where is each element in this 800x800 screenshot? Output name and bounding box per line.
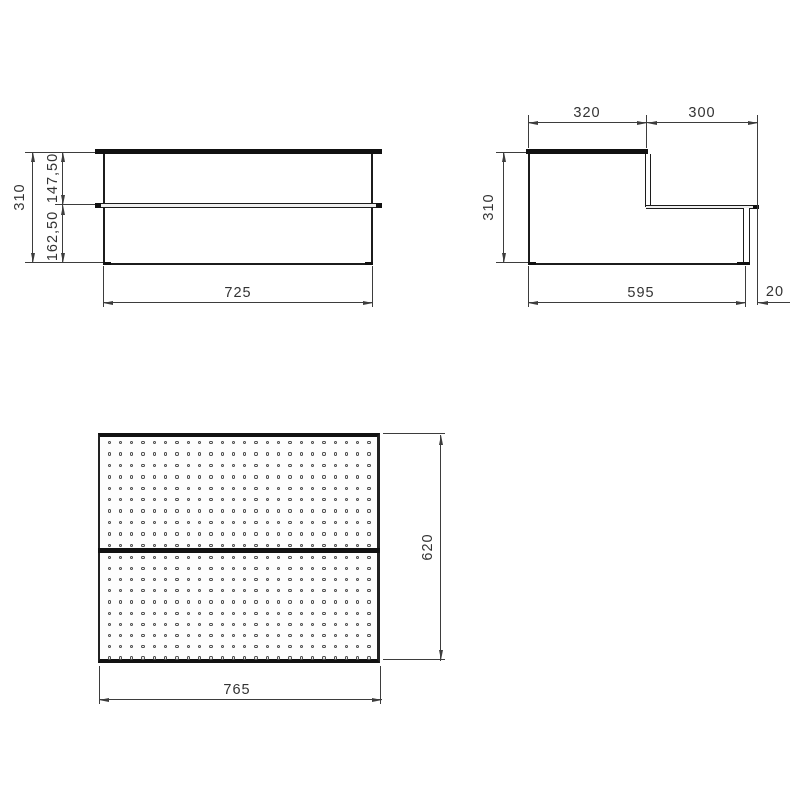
perforation-dot xyxy=(288,475,291,478)
arrowhead xyxy=(439,650,443,660)
perforation-dot xyxy=(345,475,348,478)
perforation-dot xyxy=(334,556,337,559)
perforation-dot xyxy=(141,556,144,559)
perforation-dot xyxy=(311,532,314,535)
perforation-dot xyxy=(187,612,190,615)
perforation-dot xyxy=(141,578,144,581)
arrowhead xyxy=(61,253,65,263)
perforation-dot xyxy=(367,634,370,637)
perforation-dot xyxy=(300,487,303,490)
perforation-dot xyxy=(141,612,144,615)
perforation-dot xyxy=(221,532,224,535)
arrowhead xyxy=(748,121,758,125)
perforation-dot xyxy=(266,487,269,490)
perforation-dot xyxy=(119,556,122,559)
dim-side-upper-depth: 320 xyxy=(573,105,600,121)
perforation-dot xyxy=(322,567,325,570)
perforation-dot xyxy=(300,452,303,455)
front-mid-tread-cap-right xyxy=(376,203,382,208)
side-foot-right xyxy=(737,262,750,266)
front-mid-tread-cap-left xyxy=(95,203,101,208)
front-top-tread-edge xyxy=(95,149,382,154)
perforation-dot xyxy=(187,656,190,659)
perforation-dot xyxy=(141,509,144,512)
perforation-dot xyxy=(300,509,303,512)
perforation-dot xyxy=(288,521,291,524)
perforation-dot xyxy=(209,556,212,559)
perforation-dot xyxy=(221,623,224,626)
perforation-dot xyxy=(288,464,291,467)
perforation-dot xyxy=(209,600,212,603)
perforation-dot xyxy=(119,452,122,455)
perforation-dot xyxy=(300,600,303,603)
perforation-dot xyxy=(141,487,144,490)
dim-side-lip-overhang: 20 xyxy=(766,284,784,300)
perforation-dot xyxy=(300,475,303,478)
perforation-dot xyxy=(277,475,280,478)
perforation-dot xyxy=(221,509,224,512)
perforation-dot xyxy=(108,600,111,603)
perforation-dot xyxy=(254,578,257,581)
perforation-dot xyxy=(141,544,144,547)
perforation-dot xyxy=(254,544,257,547)
perforation-dot xyxy=(187,475,190,478)
perforation-dot xyxy=(198,656,201,659)
perforation-dot xyxy=(153,532,156,535)
perforation-dot xyxy=(334,544,337,547)
perforation-dot xyxy=(209,634,212,637)
perforation-dot xyxy=(209,612,212,615)
dimension-line xyxy=(440,435,441,661)
perforation-dot xyxy=(141,600,144,603)
technical-drawing-canvas: 310 147,50 162,50 725 xyxy=(0,0,800,800)
perforation-dot xyxy=(266,656,269,659)
plan-step-divider xyxy=(98,548,380,553)
perforation-dot xyxy=(221,612,224,615)
perforation-dot xyxy=(153,656,156,659)
perforation-dot xyxy=(254,475,257,478)
front-mid-tread-edge xyxy=(95,203,382,208)
perforation-dot xyxy=(209,509,212,512)
perforation-dot xyxy=(322,556,325,559)
arrowhead xyxy=(31,152,35,162)
side-lower-tread-cap xyxy=(753,205,759,210)
arrowhead xyxy=(528,121,538,125)
perforation-dot xyxy=(322,498,325,501)
perforation-dot xyxy=(254,623,257,626)
perforation-dot xyxy=(175,567,178,570)
perforation-dot xyxy=(187,487,190,490)
front-foot-right xyxy=(365,262,373,266)
dim-front-width: 725 xyxy=(224,285,251,301)
perforation-dot xyxy=(108,521,111,524)
perforation-dot xyxy=(108,556,111,559)
perforation-dot xyxy=(209,623,212,626)
perforation-dot xyxy=(232,452,235,455)
perforation-dot xyxy=(175,600,178,603)
perforation-dot xyxy=(288,578,291,581)
perforation-dot xyxy=(288,487,291,490)
perforation-dot xyxy=(119,475,122,478)
perforation-dot xyxy=(266,544,269,547)
perforation-dot xyxy=(345,600,348,603)
perforation-dot xyxy=(288,623,291,626)
perforation-dot xyxy=(311,600,314,603)
perforation-dot xyxy=(175,509,178,512)
front-foot-left xyxy=(103,262,111,266)
perforation-dot xyxy=(108,509,111,512)
perforation-dot xyxy=(288,452,291,455)
dim-front-total-height: 310 xyxy=(12,183,28,210)
perforation-dot xyxy=(254,509,257,512)
perforation-dot xyxy=(266,509,269,512)
perforation-dot xyxy=(322,487,325,490)
perforation-dot xyxy=(187,556,190,559)
perforation-dot xyxy=(187,600,190,603)
perforation-dot xyxy=(221,567,224,570)
perforation-dot xyxy=(232,475,235,478)
perforation-dot xyxy=(108,612,111,615)
arrowhead xyxy=(758,301,768,305)
perforation-dot xyxy=(254,600,257,603)
perforation-dot xyxy=(141,475,144,478)
dim-front-upper-height: 147,50 xyxy=(45,153,61,203)
side-bottom-edge xyxy=(528,263,746,265)
perforation-dot xyxy=(334,475,337,478)
perforation-dot xyxy=(288,544,291,547)
perforation-dot xyxy=(334,623,337,626)
perforation-dot xyxy=(266,556,269,559)
perforation-dot xyxy=(187,452,190,455)
perforation-dot xyxy=(141,623,144,626)
arrowhead xyxy=(31,253,35,263)
perforation-dot xyxy=(367,452,370,455)
perforation-dot xyxy=(322,441,325,444)
arrowhead xyxy=(439,435,443,445)
perforation-dot xyxy=(288,634,291,637)
perforation-dot xyxy=(198,475,201,478)
arrowhead xyxy=(99,698,109,702)
dim-side-total-height: 310 xyxy=(481,193,497,220)
perforation-dot xyxy=(175,623,178,626)
perforation-dot xyxy=(209,567,212,570)
perforation-dot xyxy=(108,532,111,535)
arrowhead xyxy=(647,121,657,125)
arrowhead xyxy=(528,301,538,305)
perforation-dot xyxy=(108,464,111,467)
perforation-dot xyxy=(300,567,303,570)
arrowhead xyxy=(372,698,382,702)
perforation-dot xyxy=(300,612,303,615)
perforation-dot xyxy=(141,521,144,524)
perforation-dot xyxy=(334,532,337,535)
side-step-riser xyxy=(645,154,651,207)
perforation-dot xyxy=(322,464,325,467)
perforation-dot xyxy=(209,464,212,467)
perforation-dot xyxy=(141,532,144,535)
perforation-dot xyxy=(334,612,337,615)
perforation-dot xyxy=(221,521,224,524)
perforation-dot xyxy=(209,475,212,478)
dim-plan-width: 765 xyxy=(223,682,250,698)
perforation-dot xyxy=(288,509,291,512)
perforation-dot xyxy=(108,487,111,490)
perforation-dot xyxy=(334,464,337,467)
side-foot-left xyxy=(528,262,536,266)
perforation-dot xyxy=(288,567,291,570)
perforation-dot xyxy=(119,509,122,512)
front-left-edge xyxy=(103,154,105,263)
perforation-dot xyxy=(288,532,291,535)
perforation-dot xyxy=(153,452,156,455)
perforation-dot xyxy=(254,487,257,490)
extension-line xyxy=(383,433,445,434)
extension-line xyxy=(757,115,758,305)
dimension-line xyxy=(32,152,33,263)
arrowhead xyxy=(61,195,65,205)
perforation-dot xyxy=(175,475,178,478)
perforation-dot xyxy=(367,521,370,524)
perforation-dot xyxy=(300,656,303,659)
perforation-dot xyxy=(322,634,325,637)
perforation-dot xyxy=(209,544,212,547)
perforation-dot xyxy=(334,656,337,659)
perforation-dot xyxy=(198,509,201,512)
perforation-dot xyxy=(345,612,348,615)
perforation-dot xyxy=(187,532,190,535)
perforation-dot xyxy=(198,452,201,455)
perforation-dot xyxy=(345,556,348,559)
perforation-dot xyxy=(367,656,370,659)
front-right-edge xyxy=(371,154,373,263)
perforation-dot xyxy=(175,521,178,524)
perforation-dot xyxy=(345,509,348,512)
dim-side-lower-depth: 300 xyxy=(688,105,715,121)
perforation-dot xyxy=(108,656,111,659)
dimension-line xyxy=(103,302,373,303)
perforation-dot xyxy=(266,532,269,535)
perforation-dot xyxy=(367,509,370,512)
perforation-dot xyxy=(119,612,122,615)
perforation-dot xyxy=(119,532,122,535)
perforation-dot xyxy=(141,567,144,570)
perforation-dot xyxy=(175,452,178,455)
perforation-dot xyxy=(300,544,303,547)
arrowhead xyxy=(637,121,647,125)
perforation-dot xyxy=(367,612,370,615)
perforation-dot xyxy=(153,487,156,490)
perforation-dot xyxy=(311,656,314,659)
perforation-dot xyxy=(345,656,348,659)
side-rear-lip xyxy=(743,208,750,262)
perforation-dot xyxy=(254,656,257,659)
dimension-line xyxy=(528,302,746,303)
perforation-dot xyxy=(153,612,156,615)
perforation-dot xyxy=(300,623,303,626)
perforation-dot xyxy=(254,612,257,615)
perforation-dot xyxy=(108,475,111,478)
perforation-dot xyxy=(153,544,156,547)
perforation-dot xyxy=(334,600,337,603)
perforation-dot xyxy=(187,567,190,570)
perforation-dot xyxy=(209,656,212,659)
perforation-dot xyxy=(311,475,314,478)
perforation-dot xyxy=(221,475,224,478)
perforation-dot xyxy=(322,578,325,581)
dim-plan-depth: 620 xyxy=(420,533,436,560)
perforation-dot xyxy=(153,556,156,559)
perforation-dot xyxy=(254,556,257,559)
perforation-dot xyxy=(322,452,325,455)
perforation-dot xyxy=(254,464,257,467)
perforation-dot xyxy=(345,532,348,535)
perforation-dot xyxy=(254,521,257,524)
perforation-dot xyxy=(187,623,190,626)
perforation-dot xyxy=(266,475,269,478)
perforation-dot xyxy=(187,544,190,547)
perforation-dot xyxy=(209,578,212,581)
perforation-dot xyxy=(141,656,144,659)
perforation-dot xyxy=(288,612,291,615)
perforation-dot xyxy=(367,600,370,603)
perforation-dot xyxy=(221,452,224,455)
perforation-dot xyxy=(367,475,370,478)
perforation-dot xyxy=(209,498,212,501)
perforation-dot xyxy=(254,532,257,535)
perforation-dot xyxy=(232,532,235,535)
perforation-dot xyxy=(108,452,111,455)
perforation-dot xyxy=(322,656,325,659)
perforation-dot xyxy=(221,487,224,490)
perforation-dot xyxy=(367,556,370,559)
perforation-dot xyxy=(345,452,348,455)
perforation-dot xyxy=(175,544,178,547)
perforation-dot xyxy=(254,567,257,570)
perforation-dot xyxy=(108,623,111,626)
perforation-dot xyxy=(322,475,325,478)
perforation-dot xyxy=(141,452,144,455)
perforation-dot xyxy=(322,532,325,535)
perforation-dot xyxy=(209,441,212,444)
perforation-dot xyxy=(334,567,337,570)
perforation-dot xyxy=(221,600,224,603)
perforation-dot xyxy=(175,464,178,467)
perforation-dot xyxy=(153,509,156,512)
perforation-dot xyxy=(288,556,291,559)
side-top-tread xyxy=(526,149,648,154)
perforation-dot xyxy=(164,532,167,535)
perforation-dot xyxy=(334,509,337,512)
perforation-dot xyxy=(288,600,291,603)
perforation-dot xyxy=(266,600,269,603)
perforation-dot xyxy=(322,509,325,512)
perforation-dot xyxy=(322,623,325,626)
perforation-dot xyxy=(175,487,178,490)
perforation-dot xyxy=(254,634,257,637)
perforation-dot xyxy=(108,544,111,547)
dimension-line xyxy=(99,699,382,700)
perforation-dot xyxy=(311,509,314,512)
arrowhead xyxy=(61,152,65,162)
perforation-dot xyxy=(221,544,224,547)
perforation-dot xyxy=(300,556,303,559)
perforation-dot xyxy=(277,532,280,535)
perforation-dot xyxy=(175,634,178,637)
perforation-dot xyxy=(367,544,370,547)
perforation-dot xyxy=(198,532,201,535)
perforation-dot xyxy=(322,600,325,603)
arrowhead xyxy=(502,253,506,263)
perforation-dot xyxy=(141,634,144,637)
perforation-dot xyxy=(153,475,156,478)
perforation-dot xyxy=(334,521,337,524)
perforation-dot xyxy=(367,578,370,581)
perforation-dot xyxy=(367,623,370,626)
extension-line xyxy=(383,659,445,660)
perforation-dot xyxy=(221,656,224,659)
perforation-dot xyxy=(266,452,269,455)
perforation-dot xyxy=(367,464,370,467)
arrowhead xyxy=(502,152,506,162)
perforation-dot xyxy=(221,464,224,467)
arrowhead xyxy=(61,205,65,215)
perforation-dot xyxy=(209,487,212,490)
side-left-edge xyxy=(528,154,530,263)
perforation-dot xyxy=(300,532,303,535)
arrowhead xyxy=(363,301,373,305)
perforation-dot xyxy=(232,600,235,603)
perforation-dot xyxy=(141,464,144,467)
perforation-dot xyxy=(322,544,325,547)
perforation-dot xyxy=(311,452,314,455)
perforation-dot xyxy=(153,600,156,603)
perforation-dot xyxy=(322,521,325,524)
dim-front-lower-height: 162,50 xyxy=(45,211,61,261)
perforation-dot xyxy=(232,612,235,615)
perforation-dot xyxy=(334,487,337,490)
perforation-dot xyxy=(232,656,235,659)
perforation-dot xyxy=(175,656,178,659)
perforation-dot xyxy=(164,475,167,478)
extension-line xyxy=(496,152,526,153)
perforation-dot xyxy=(367,567,370,570)
perforation-dot xyxy=(322,612,325,615)
perforation-dot xyxy=(175,556,178,559)
perforation-dot xyxy=(232,509,235,512)
dim-side-base-depth: 595 xyxy=(627,285,654,301)
perforation-dot xyxy=(367,532,370,535)
perforation-dot xyxy=(175,532,178,535)
arrowhead xyxy=(103,301,113,305)
perforation-dot xyxy=(119,656,122,659)
perforation-dot xyxy=(175,578,178,581)
perforation-dot xyxy=(367,487,370,490)
arrowhead xyxy=(736,301,746,305)
perforation-dot xyxy=(254,452,257,455)
perforation-dot xyxy=(119,600,122,603)
dimension-line xyxy=(503,152,504,263)
perforation-dot xyxy=(209,521,212,524)
perforation-dot xyxy=(187,509,190,512)
perforation-dot xyxy=(221,556,224,559)
perforation-dot xyxy=(266,612,269,615)
perforation-dot xyxy=(209,452,212,455)
perforation-dot xyxy=(288,656,291,659)
perforation-dot xyxy=(175,612,178,615)
perforation-dot xyxy=(108,567,111,570)
perforation-dot xyxy=(209,532,212,535)
perforation-dot xyxy=(232,556,235,559)
